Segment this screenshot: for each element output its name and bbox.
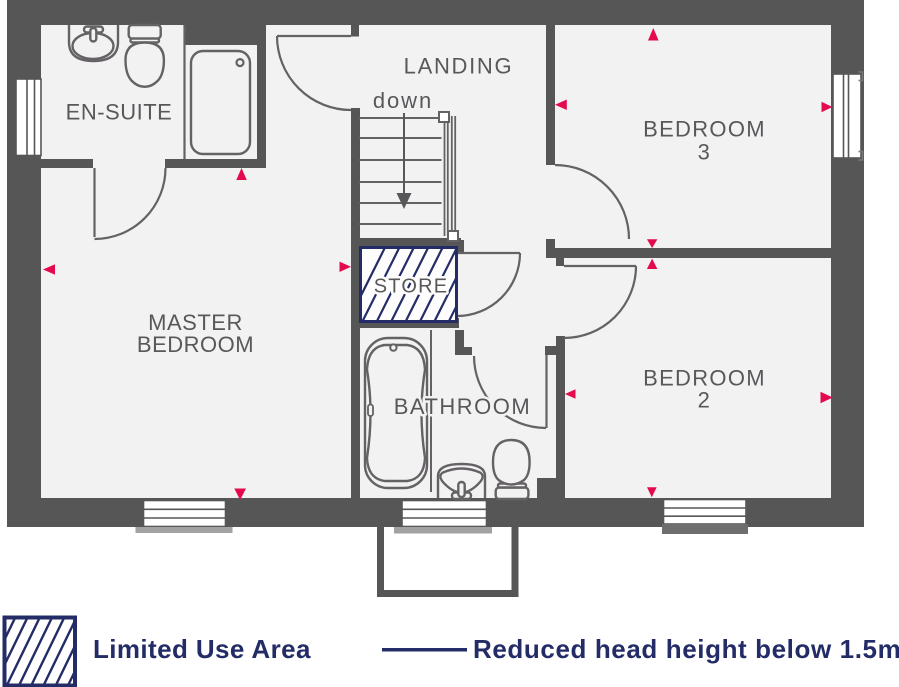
svg-text:Reduced head height below 1.5m: Reduced head height below 1.5m <box>473 634 899 664</box>
svg-text:2: 2 <box>698 388 711 413</box>
svg-text:BEDROOM: BEDROOM <box>137 332 254 357</box>
svg-text:STORE: STORE <box>374 276 449 298</box>
svg-text:BATHROOM: BATHROOM <box>394 394 531 419</box>
svg-text:Limited Use Area: Limited Use Area <box>93 634 311 664</box>
svg-text:EN-SUITE: EN-SUITE <box>66 99 173 124</box>
svg-text:LANDING: LANDING <box>404 54 514 79</box>
svg-text:3: 3 <box>698 140 711 165</box>
svg-text:BEDROOM: BEDROOM <box>643 117 766 142</box>
svg-text:down: down <box>373 88 433 113</box>
